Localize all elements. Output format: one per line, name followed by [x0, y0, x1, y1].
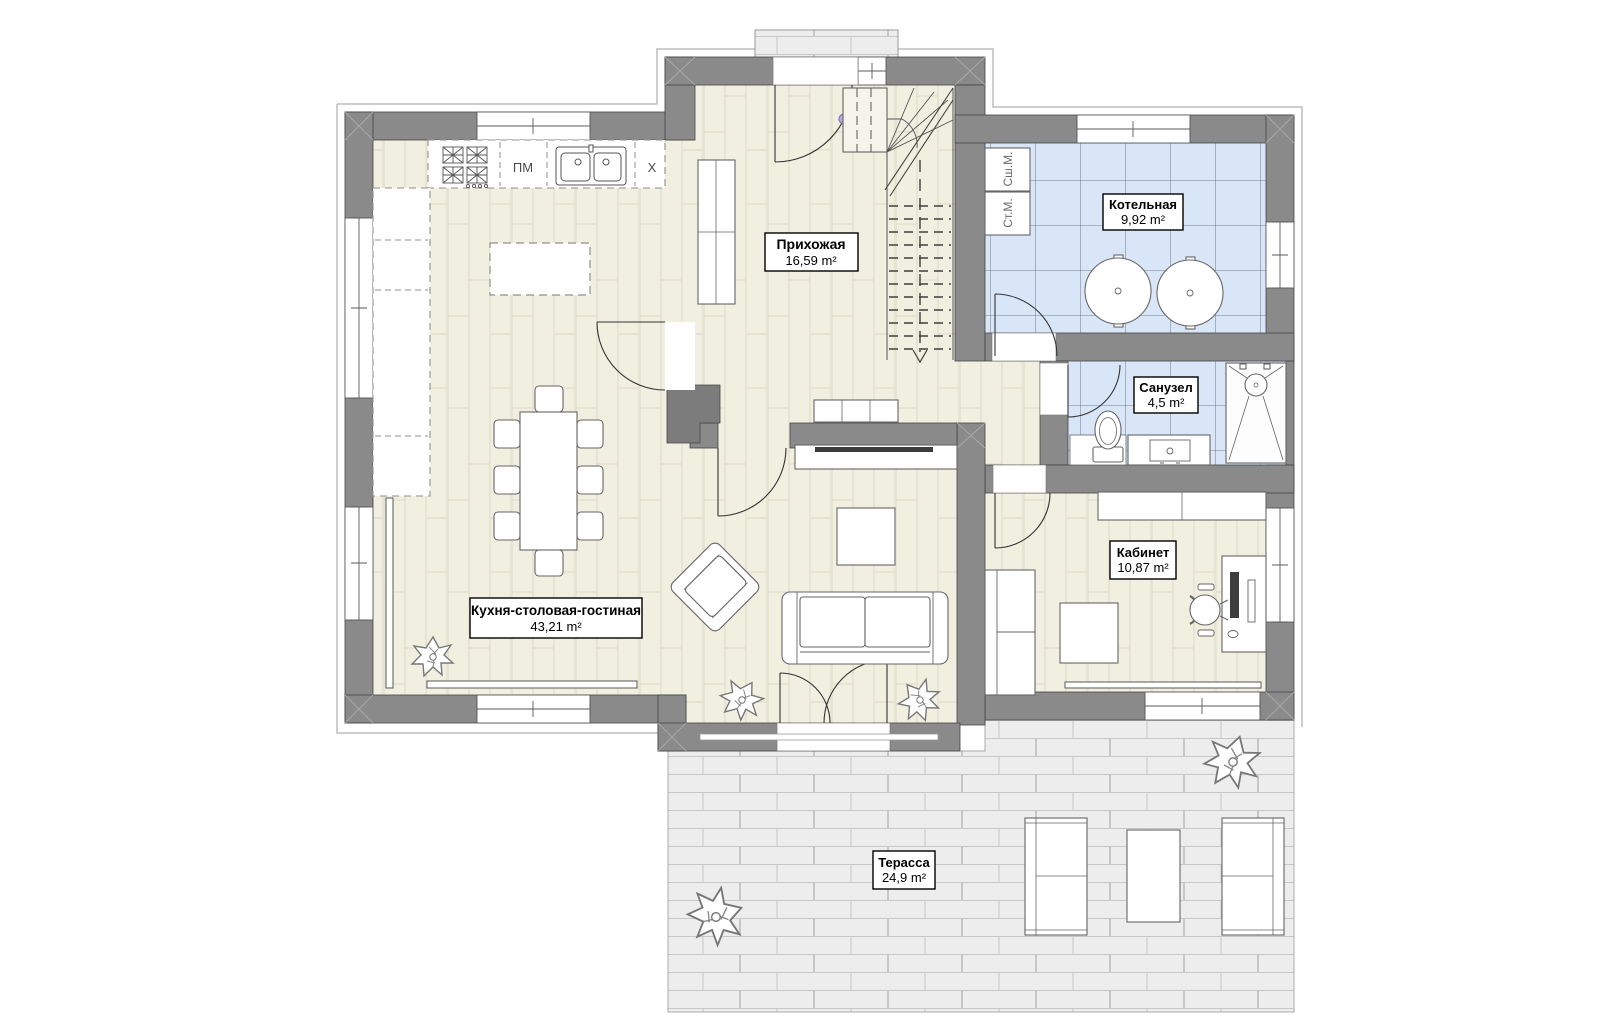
tv-icon — [815, 447, 933, 452]
entrance-door-opening — [773, 57, 858, 85]
terrace-sofa-right — [1222, 818, 1284, 935]
dining-chair — [577, 512, 603, 540]
wall-left — [345, 112, 373, 723]
dining-chair — [577, 420, 603, 448]
toilet-icon — [1093, 411, 1123, 462]
floor-plan-svg: ПМ X — [0, 0, 1600, 1024]
window-kitchen-top — [477, 112, 590, 140]
svg-text:4,5 m²: 4,5 m² — [1148, 395, 1186, 410]
svg-text:43,21 m²: 43,21 m² — [530, 619, 582, 634]
wall-living-right — [957, 423, 985, 725]
drying-machine-label: Сш.М. — [1001, 152, 1015, 187]
wall-right-bath — [1286, 361, 1294, 465]
dining-table — [520, 412, 577, 550]
window-left-lower — [345, 507, 373, 620]
svg-text:24,9 m²: 24,9 m² — [882, 870, 927, 885]
room-label-bathroom: Санузел 4,5 m² — [1134, 377, 1198, 413]
svg-text:Кухня-столовая-гостиная: Кухня-столовая-гостиная — [471, 603, 641, 618]
dining-chair — [494, 466, 520, 494]
dining-chair — [577, 466, 603, 494]
svg-text:16,59 m²: 16,59 m² — [785, 253, 837, 268]
monitor-icon — [1230, 572, 1239, 618]
radiator-bottom — [427, 681, 637, 688]
svg-text:Прихожая: Прихожая — [776, 236, 845, 252]
window-boiler-top — [1077, 115, 1190, 143]
room-label-hallway: Прихожая 16,59 m² — [765, 233, 858, 271]
window-office-bottom — [1145, 692, 1260, 720]
sofa — [782, 592, 948, 664]
dining-chair — [535, 386, 563, 412]
shower-icon — [1226, 363, 1286, 463]
radiator-left — [386, 498, 393, 688]
mouse-icon — [1228, 631, 1238, 638]
hallway-bench — [814, 400, 898, 422]
room-label-terrace: Терасса 24,9 m² — [873, 851, 935, 889]
sink-icon — [556, 145, 626, 185]
stairs-first-steps — [843, 88, 887, 152]
coffee-table — [837, 508, 895, 565]
office-sofa — [985, 570, 1035, 695]
svg-text:Котельная: Котельная — [1109, 197, 1177, 212]
window-boiler-right — [1266, 222, 1294, 288]
dining-chair — [494, 420, 520, 448]
kitchen-island — [490, 243, 590, 295]
floor-plan-page: ПМ X — [0, 0, 1600, 1024]
terrace-door-threshold — [700, 734, 938, 740]
window-living-bottom — [477, 695, 590, 723]
terrace-sofa-left — [1025, 818, 1087, 935]
fridge-label: X — [648, 160, 657, 175]
window-entrance-sidelight — [858, 57, 886, 85]
wall-living-hall-b — [790, 423, 957, 448]
terrace-table — [1127, 830, 1180, 922]
kitchen-hall-door-opening — [665, 322, 695, 390]
kitchen-counter-left — [373, 188, 430, 496]
room-label-boiler: Котельная 9,92 m² — [1103, 194, 1183, 230]
room-label-kitchen-living: Кухня-столовая-гостиная 43,21 m² — [470, 598, 642, 638]
svg-text:Кабинет: Кабинет — [1117, 545, 1170, 560]
svg-text:9,92 m²: 9,92 m² — [1121, 212, 1166, 227]
office-desk — [1222, 556, 1266, 652]
dishwasher-label: ПМ — [513, 160, 533, 175]
radiator-office — [1065, 682, 1261, 688]
svg-text:Санузел: Санузел — [1139, 380, 1192, 395]
room-label-office: Кабинет 10,87 m² — [1110, 541, 1176, 579]
bathroom-door-opening — [1040, 363, 1068, 415]
washing-machine-label: Ст.М. — [1001, 198, 1015, 228]
office-ottoman — [1060, 603, 1118, 663]
window-office-right — [1266, 508, 1294, 622]
dining-chair — [494, 512, 520, 540]
boiler-door-opening — [992, 333, 1056, 361]
svg-text:10,87 m²: 10,87 m² — [1117, 560, 1169, 575]
terrace-paving — [668, 720, 1294, 1012]
keyboard-icon — [1248, 580, 1255, 622]
office-door-opening — [993, 465, 1046, 493]
dining-chair — [535, 550, 563, 576]
vanity-sink — [1128, 435, 1210, 465]
terrace-furniture — [1025, 818, 1284, 935]
svg-text:Терасса: Терасса — [878, 855, 930, 870]
window-left-upper — [345, 218, 373, 398]
